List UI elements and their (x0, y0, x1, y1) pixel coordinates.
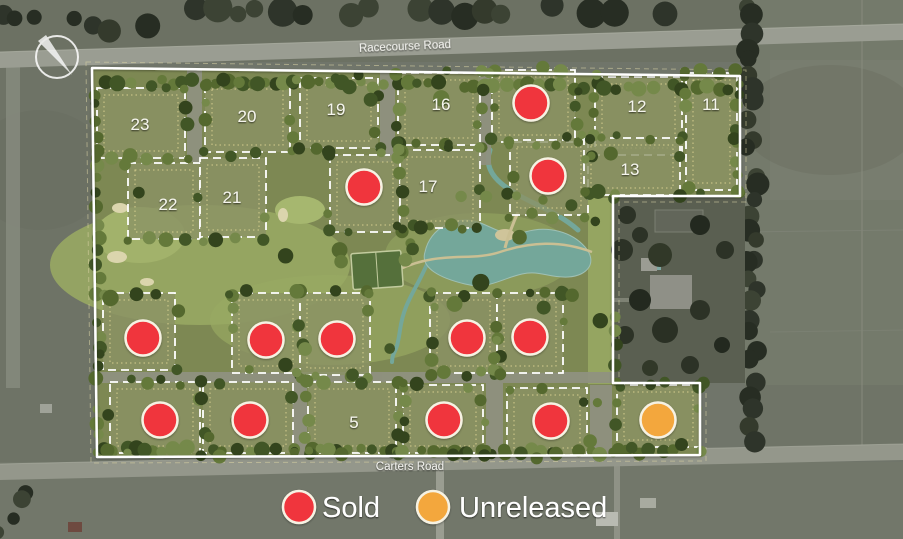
tree-icon (399, 395, 411, 407)
tree-icon (609, 325, 622, 338)
tree-icon (412, 79, 421, 88)
tree-icon (305, 447, 313, 455)
tree-icon (230, 6, 246, 22)
tree-icon (570, 101, 581, 112)
tree-icon (27, 10, 42, 25)
tree-icon (442, 66, 451, 75)
tree-icon (299, 432, 311, 444)
tree-icon (127, 375, 136, 384)
tree-icon (585, 134, 595, 144)
tree-icon (491, 5, 510, 24)
tree-icon (481, 418, 489, 426)
tree-icon (546, 212, 559, 225)
tree-icon (596, 80, 611, 95)
unreleased-legend-swatch (417, 491, 449, 523)
tree-icon (216, 73, 230, 87)
tree-icon (228, 324, 238, 334)
tree-icon (199, 113, 212, 126)
tree-icon (473, 120, 482, 129)
tree-icon (498, 447, 511, 460)
tree-icon (93, 361, 104, 372)
subdivision-masterplan: 232019161211132221175 Racecourse Road Ca… (0, 0, 903, 539)
tree-icon (151, 289, 162, 300)
tree-icon (608, 359, 621, 372)
tree-icon (162, 83, 171, 92)
tree-icon (462, 371, 473, 382)
tree-icon (184, 155, 192, 163)
tree-icon (538, 195, 547, 204)
tree-icon (626, 442, 638, 454)
tree-icon (245, 365, 254, 374)
tree-icon (406, 243, 419, 256)
tree-icon (743, 398, 763, 418)
tree-icon (322, 145, 335, 158)
tree-icon (593, 313, 608, 328)
tree-icon (501, 188, 513, 200)
tree-icon (119, 159, 131, 171)
tree-icon (199, 147, 208, 156)
tree-icon (90, 116, 101, 127)
tree-icon (492, 288, 502, 298)
tree-icon (437, 365, 451, 379)
tree-icon (140, 153, 153, 166)
tree-icon (571, 118, 584, 131)
tree-icon (490, 103, 499, 112)
tree-icon (208, 232, 223, 247)
tree-icon (713, 67, 726, 80)
tree-icon (723, 85, 734, 96)
tree-icon (7, 512, 19, 524)
tree-icon (285, 391, 298, 404)
tree-icon (362, 305, 374, 317)
tree-icon (300, 391, 312, 403)
tree-icon (364, 289, 373, 298)
tree-icon (250, 147, 261, 158)
tree-icon (578, 131, 586, 139)
tree-icon (526, 289, 534, 297)
tree-icon (284, 115, 295, 126)
tree-icon (746, 173, 769, 196)
tree-icon (645, 380, 656, 391)
lot-number: 21 (223, 188, 242, 207)
tree-icon (278, 358, 292, 372)
tree-icon (398, 431, 410, 443)
tree-icon (301, 75, 316, 90)
tree-icon (346, 368, 359, 381)
tree-icon (396, 185, 409, 198)
tree-icon (494, 368, 506, 380)
tree-icon (260, 212, 270, 222)
tree-icon (67, 11, 82, 26)
lot-status-marker-sold[interactable] (143, 403, 178, 438)
tree-icon (199, 237, 208, 246)
lot-number: 22 (159, 195, 178, 214)
tree-icon (278, 248, 293, 263)
lot-number: 17 (419, 177, 438, 196)
tree-icon (554, 64, 568, 78)
tree-icon (367, 444, 377, 454)
tree-icon (293, 142, 305, 154)
tree-icon (102, 290, 118, 306)
tree-icon (323, 224, 335, 236)
tree-icon (143, 231, 156, 244)
tree-icon (257, 234, 269, 246)
tree-icon (612, 398, 621, 407)
tree-icon (130, 287, 144, 301)
tree-icon (474, 142, 484, 152)
tree-icon (679, 100, 692, 113)
tree-icon (505, 214, 513, 222)
tree-icon (287, 131, 299, 143)
lot-number: 12 (628, 97, 647, 116)
tree-icon (674, 151, 685, 162)
tree-icon (488, 352, 500, 364)
tree-icon (344, 228, 352, 236)
tree-icon (553, 78, 566, 91)
tree-icon (699, 78, 714, 93)
tree-icon (334, 255, 348, 269)
tree-icon (740, 3, 763, 26)
lot-status-marker-sold[interactable] (347, 170, 382, 205)
tree-icon (357, 444, 366, 453)
lot-status-marker-sold[interactable] (427, 403, 462, 438)
tree-icon (560, 318, 568, 326)
tree-icon (475, 394, 487, 406)
tree-icon (613, 131, 621, 139)
tree-icon (202, 79, 212, 89)
tree-icon (105, 151, 119, 165)
tree-icon (159, 232, 174, 247)
tree-icon (492, 336, 501, 345)
tree-icon (302, 414, 315, 427)
tree-icon (679, 88, 691, 100)
tree-icon (323, 209, 332, 218)
tree-icon (410, 377, 424, 391)
tree-icon (391, 121, 402, 132)
tree-icon (157, 75, 167, 85)
lot-number: 20 (238, 107, 257, 126)
tree-icon (204, 432, 215, 443)
tree-icon (526, 208, 537, 219)
tree-icon (748, 232, 764, 248)
tree-icon (400, 417, 410, 427)
sand-bunker (140, 278, 154, 286)
tree-icon (92, 318, 101, 327)
tree-icon (172, 364, 183, 375)
tree-icon (156, 375, 165, 384)
tree-icon (426, 337, 439, 350)
tree-icon (472, 274, 489, 291)
tree-icon (246, 0, 264, 18)
tree-icon (565, 199, 577, 211)
tree-icon (162, 153, 174, 165)
tree-icon (537, 301, 551, 315)
tree-icon (290, 284, 305, 299)
tree-icon (331, 74, 341, 84)
tree-icon (539, 287, 550, 298)
tree-icon (589, 92, 600, 103)
sold-legend-swatch (283, 491, 315, 523)
tree-icon (91, 187, 101, 197)
tree-icon (536, 383, 547, 394)
tree-icon (458, 225, 467, 234)
tree-icon (298, 342, 312, 356)
tree-icon (477, 84, 489, 96)
tree-icon (500, 78, 514, 92)
lot-parcel[interactable] (400, 150, 480, 228)
tree-icon (611, 84, 622, 95)
tree-icon (431, 75, 446, 90)
lot-status-marker-sold[interactable] (320, 322, 355, 357)
tree-icon (579, 397, 588, 406)
tree-icon (177, 444, 189, 456)
tree-icon (427, 287, 436, 296)
tree-icon (342, 80, 357, 95)
tree-icon (389, 68, 402, 81)
tree-icon (574, 87, 582, 95)
tree-icon (580, 187, 590, 197)
lot-number: 16 (432, 95, 451, 114)
tree-icon (589, 108, 599, 118)
tree-icon (214, 378, 225, 389)
tree-icon (195, 375, 207, 387)
tree-icon (7, 10, 23, 26)
tree-icon (447, 296, 463, 312)
tree-icon (195, 392, 208, 405)
lot-status-marker-sold[interactable] (233, 403, 268, 438)
tree-icon (512, 230, 527, 245)
tree-icon (505, 386, 514, 395)
lot-number: 13 (621, 160, 640, 179)
tree-icon (141, 377, 154, 390)
tree-icon (180, 117, 194, 131)
tree-icon (185, 73, 199, 87)
tree-icon (728, 132, 741, 145)
tree-icon (531, 452, 543, 464)
tree-icon (397, 205, 409, 217)
tree-icon (610, 189, 620, 199)
house (650, 275, 692, 309)
legend-label-unreleased: Unreleased (459, 492, 607, 524)
tree-icon (417, 446, 426, 455)
tree-icon (314, 77, 323, 86)
lot-number: 11 (702, 95, 720, 114)
tree-icon (93, 429, 103, 439)
tree-icon (100, 443, 114, 457)
tree-icon (566, 289, 579, 302)
tree-icon (551, 141, 560, 150)
tree-icon (514, 447, 528, 461)
tree-icon (393, 103, 407, 117)
tree-icon (675, 438, 688, 451)
sand-bunker (112, 203, 128, 213)
tree-icon (179, 101, 193, 115)
legend-label-sold: Sold (322, 492, 380, 524)
tree-icon (230, 233, 241, 244)
tree-icon (747, 192, 762, 207)
tree-icon (292, 368, 301, 377)
tree-icon (480, 191, 492, 203)
tree-icon (507, 171, 519, 183)
tree-icon (411, 139, 420, 148)
tree-icon (472, 223, 482, 233)
tree-icon (398, 225, 407, 234)
tree-icon (476, 366, 486, 376)
tree-icon (591, 217, 601, 227)
lot-status-marker-sold[interactable] (534, 404, 569, 439)
carters-road-label: Carters Road (376, 461, 444, 473)
tree-icon (292, 75, 301, 84)
lot-status-marker-sold[interactable] (514, 86, 549, 121)
tree-icon (399, 253, 413, 267)
sand-bunker (278, 208, 288, 222)
tree-icon (126, 78, 137, 89)
tree-icon (293, 5, 313, 25)
tree-icon (631, 81, 646, 96)
tree-icon (740, 51, 757, 68)
tree-icon (580, 213, 590, 223)
tree-icon (225, 290, 233, 298)
tree-icon (463, 383, 473, 393)
tree-icon (549, 447, 563, 461)
lot-status-marker-sold[interactable] (513, 320, 548, 355)
tree-icon (399, 379, 408, 388)
tennis-court (351, 250, 403, 289)
tree-icon (364, 93, 378, 107)
tree-icon (425, 353, 439, 367)
tree-icon (377, 148, 386, 157)
tree-icon (445, 218, 458, 231)
lot-status-marker-sold[interactable] (531, 159, 566, 194)
tree-icon (176, 381, 185, 390)
tree-icon (604, 147, 618, 161)
tree-icon (609, 418, 622, 431)
tree-icon (476, 103, 488, 115)
tree-icon (455, 191, 466, 202)
tree-icon (98, 19, 121, 42)
tree-icon (133, 187, 145, 199)
tree-icon (13, 490, 31, 508)
tree-icon (485, 133, 497, 145)
tree-icon (225, 151, 236, 162)
tree-icon (300, 374, 314, 388)
tree-icon (89, 200, 103, 214)
tree-icon (172, 304, 185, 317)
tree-icon (393, 167, 406, 180)
lot-number: 5 (349, 413, 358, 432)
tree-icon (270, 443, 282, 455)
tree-icon (532, 142, 540, 150)
tree-icon (425, 369, 437, 381)
tree-icon (583, 434, 597, 448)
lot-status-marker-sold[interactable] (249, 323, 284, 358)
tree-icon (124, 237, 132, 245)
tree-icon (562, 132, 572, 142)
tree-icon (612, 443, 625, 456)
tree-icon (369, 127, 380, 138)
tree-icon (231, 443, 244, 456)
tree-icon (647, 81, 660, 94)
tree-icon (335, 447, 349, 461)
tree-icon (503, 136, 514, 147)
tree-icon (233, 77, 244, 88)
tree-icon (536, 61, 549, 74)
tree-icon (102, 409, 114, 421)
legend: Sold Unreleased (283, 491, 607, 524)
tree-icon (676, 137, 684, 145)
tree-icon (597, 134, 605, 142)
lot-status-marker-unreleased[interactable] (641, 403, 676, 438)
tree-icon (581, 155, 590, 164)
tree-icon (135, 13, 160, 38)
tree-icon (322, 443, 336, 457)
tree-icon (512, 191, 521, 200)
tree-icon (384, 343, 395, 354)
tree-icon (378, 79, 388, 89)
tree-icon (179, 233, 192, 246)
tree-icon (393, 144, 405, 156)
masterplan-svg: 232019161211132221175 Racecourse Road Ca… (0, 0, 903, 539)
tree-icon (610, 312, 621, 323)
tree-icon (744, 431, 765, 452)
tree-icon (414, 221, 428, 235)
tree-icon (250, 76, 265, 91)
lot-number: 19 (327, 100, 346, 119)
lot-number: 23 (131, 115, 150, 134)
tree-icon (193, 193, 202, 202)
tree-icon (591, 184, 606, 199)
tree-icon (180, 85, 189, 94)
tree-icon (202, 99, 210, 107)
lot-status-marker-sold[interactable] (126, 321, 161, 356)
tree-icon (735, 171, 743, 179)
tree-icon (316, 375, 330, 389)
tree-icon (228, 303, 239, 314)
tree-icon (430, 303, 438, 311)
tree-icon (146, 80, 157, 91)
excluded-property (611, 196, 745, 383)
lot-status-marker-sold[interactable] (450, 321, 485, 356)
legend-item-sold: Sold (283, 491, 380, 524)
tree-icon (109, 75, 125, 91)
tree-icon (311, 143, 323, 155)
tree-icon (293, 319, 305, 331)
sand-bunker (107, 251, 127, 263)
tree-icon (593, 398, 602, 407)
tree-icon (490, 321, 502, 333)
tree-icon (653, 2, 678, 27)
tree-icon (444, 140, 452, 148)
tree-icon (240, 284, 253, 297)
tree-icon (330, 285, 341, 296)
tree-icon (138, 443, 152, 457)
tree-icon (645, 135, 655, 145)
